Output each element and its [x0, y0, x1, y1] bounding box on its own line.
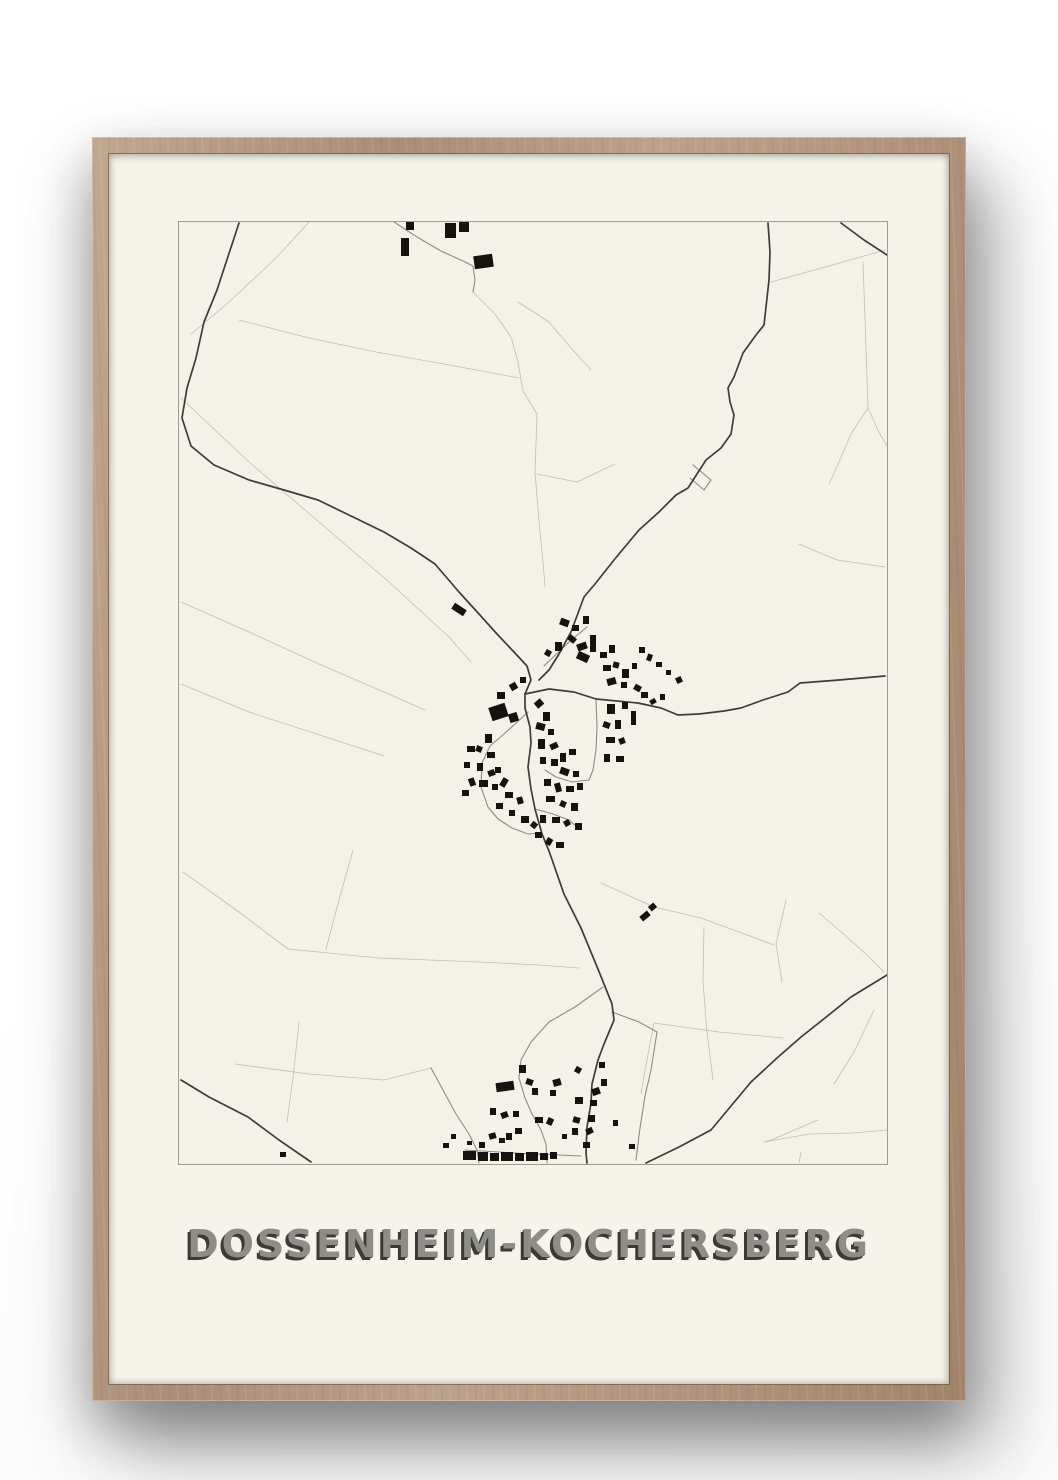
- poster-title: DOSSENHEIM-KOCHERSBERG: [109, 1222, 949, 1266]
- building: [540, 815, 546, 823]
- building: [575, 1097, 583, 1104]
- building: [546, 1117, 554, 1126]
- building: [500, 1111, 509, 1119]
- southeast-diagonal-road: [646, 975, 887, 1163]
- building: [535, 722, 546, 731]
- building: [577, 783, 583, 790]
- building: [631, 711, 636, 725]
- building: [485, 734, 492, 743]
- building: [538, 739, 545, 749]
- building: [571, 803, 578, 811]
- building: [660, 694, 665, 700]
- building: [443, 1143, 449, 1148]
- building: [607, 704, 615, 714]
- building: [478, 1152, 488, 1161]
- building: [520, 677, 526, 683]
- building: [583, 1142, 590, 1148]
- building: [573, 771, 579, 777]
- building: [572, 1116, 580, 1124]
- building: [574, 1066, 582, 1074]
- building: [559, 767, 570, 777]
- building: [622, 669, 629, 678]
- building: [576, 642, 588, 652]
- north-road: [539, 223, 770, 680]
- building: [550, 1090, 556, 1096]
- building: [540, 757, 546, 764]
- building: [600, 652, 607, 658]
- building: [467, 746, 475, 752]
- building: [572, 1128, 578, 1135]
- building: [560, 753, 566, 762]
- building: [599, 1062, 605, 1068]
- building: [280, 1152, 286, 1157]
- south-village-east-street: [612, 1012, 657, 1160]
- building: [666, 670, 671, 675]
- building: [451, 1134, 456, 1139]
- building: [618, 737, 626, 745]
- building: [497, 692, 505, 699]
- building: [519, 1065, 526, 1073]
- building: [464, 762, 470, 768]
- building: [487, 752, 495, 758]
- building: [479, 1142, 485, 1148]
- building: [544, 649, 552, 657]
- building: [604, 754, 610, 762]
- poster-paper: DOSSENHEIM-KOCHERSBERG: [109, 154, 949, 1384]
- building: [501, 1152, 513, 1161]
- building: [549, 742, 559, 751]
- building: [479, 780, 488, 787]
- building: [554, 782, 562, 792]
- building: [468, 777, 476, 787]
- building: [546, 796, 555, 802]
- building: [648, 902, 657, 911]
- building: [615, 720, 621, 729]
- wall-background: DOSSENHEIM-KOCHERSBERG: [0, 0, 1058, 1480]
- building: [583, 616, 589, 624]
- building: [535, 832, 542, 838]
- building: [495, 767, 501, 773]
- building: [639, 647, 645, 653]
- building: [406, 222, 414, 230]
- building: [401, 238, 409, 256]
- building: [649, 698, 657, 705]
- building: [556, 842, 564, 848]
- building: [559, 800, 567, 808]
- building: [459, 222, 469, 232]
- building: [526, 1152, 538, 1161]
- building: [602, 721, 611, 729]
- south-village-feeder: [431, 1068, 479, 1163]
- buildings: [280, 222, 683, 1161]
- building: [639, 910, 651, 921]
- east-road: [525, 676, 885, 715]
- northeast-corner-road: [841, 223, 887, 255]
- building: [515, 1128, 522, 1134]
- building: [606, 737, 615, 743]
- building: [463, 1151, 476, 1160]
- major-roads: [181, 223, 887, 1163]
- building: [544, 779, 551, 786]
- building: [562, 1134, 567, 1139]
- building: [555, 642, 562, 651]
- building: [550, 1152, 557, 1159]
- building: [490, 1153, 499, 1161]
- building: [530, 821, 538, 829]
- building: [451, 603, 467, 616]
- building: [488, 1132, 496, 1140]
- building: [505, 792, 513, 798]
- building: [509, 682, 519, 692]
- building: [551, 759, 558, 766]
- building: [509, 810, 515, 816]
- building: [445, 223, 456, 238]
- building: [540, 1153, 548, 1160]
- building: [535, 1117, 543, 1123]
- building: [622, 702, 628, 709]
- building: [477, 763, 483, 771]
- south-village-west-street: [519, 987, 603, 1163]
- building: [488, 703, 508, 722]
- building: [613, 1120, 618, 1126]
- building: [603, 665, 611, 671]
- building: [621, 682, 627, 688]
- poster-frame: DOSSENHEIM-KOCHERSBERG: [92, 137, 966, 1401]
- building: [467, 1141, 472, 1145]
- building: [569, 749, 576, 755]
- building: [575, 823, 582, 830]
- building: [475, 745, 483, 753]
- building: [675, 676, 683, 684]
- building: [633, 684, 642, 693]
- building: [566, 786, 574, 792]
- building: [590, 1100, 597, 1106]
- building: [601, 1079, 607, 1086]
- building: [590, 635, 596, 652]
- building: [513, 1111, 519, 1117]
- southwest-diagonal-road: [181, 1080, 311, 1162]
- building: [606, 677, 617, 686]
- building: [534, 698, 545, 709]
- building: [516, 796, 524, 804]
- building: [609, 645, 615, 653]
- minor-roads: [394, 222, 711, 1163]
- building: [632, 663, 637, 669]
- building: [521, 816, 529, 823]
- building: [462, 790, 469, 796]
- building: [499, 777, 509, 788]
- building: [548, 729, 554, 735]
- building: [656, 662, 662, 667]
- top-farm-lane: [394, 222, 475, 292]
- building: [487, 769, 496, 777]
- building: [612, 661, 619, 668]
- building: [495, 1081, 514, 1092]
- building: [543, 712, 550, 721]
- building: [559, 618, 570, 628]
- building: [576, 651, 590, 663]
- building: [492, 784, 498, 790]
- building: [532, 1088, 538, 1095]
- building: [641, 692, 648, 698]
- building: [552, 1078, 562, 1087]
- building: [506, 1133, 512, 1140]
- building: [496, 803, 503, 809]
- building: [572, 625, 579, 631]
- building: [515, 1153, 524, 1161]
- village-east-loop: [545, 699, 597, 782]
- building: [473, 254, 494, 270]
- building: [552, 817, 560, 823]
- building: [629, 1144, 635, 1149]
- building: [490, 1108, 496, 1115]
- building: [588, 1115, 595, 1122]
- building: [499, 1138, 505, 1143]
- map-drawing: [179, 222, 887, 1164]
- building: [646, 653, 653, 661]
- map-canvas: [178, 221, 888, 1165]
- building: [616, 756, 624, 762]
- building: [525, 1078, 534, 1086]
